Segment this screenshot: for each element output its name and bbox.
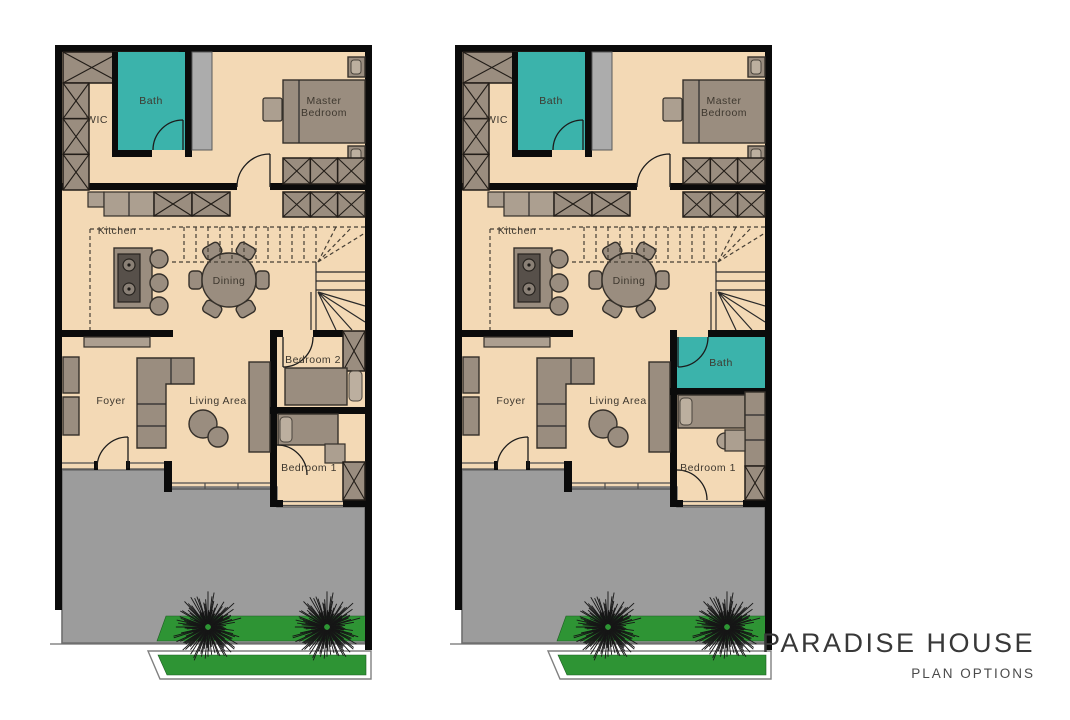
project-title: PARADISE HOUSE xyxy=(762,628,1035,658)
plan-sheet: WIC Bath Master Bedroom xyxy=(0,0,1070,720)
wall-bed2-top xyxy=(313,330,343,337)
bedroom1-wardrobe-column xyxy=(745,392,765,466)
bedroom2-wardrobe xyxy=(343,331,365,371)
wall-bed2-stub xyxy=(277,330,283,337)
floor-plan-option-1: Bedroom 2 Bedroom 1 xyxy=(50,45,372,679)
floor-plan-option-2: Bath Bedroom 1 xyxy=(450,45,772,679)
room-label-bedroom1: Bedroom 1 xyxy=(680,462,736,474)
bedroom2-bed xyxy=(285,368,362,405)
room-label-bath2: Bath xyxy=(709,357,733,369)
bedroom1-desk xyxy=(325,444,345,463)
bedroom1-wardrobe xyxy=(343,462,365,500)
room-label-bedroom2: Bedroom 2 xyxy=(285,354,341,366)
bedroom1-wardrobe xyxy=(745,466,765,500)
bedroom1-bed xyxy=(278,414,338,445)
room-label-bedroom1: Bedroom 1 xyxy=(281,462,337,474)
floor-plan-canvas: WIC Bath Master Bedroom xyxy=(0,0,1070,720)
wall-bath2-top xyxy=(708,330,765,337)
project-subtitle: PLAN OPTIONS xyxy=(911,666,1035,681)
wall-bed2-bed1 xyxy=(270,407,372,414)
bedroom1-bed xyxy=(678,395,745,428)
